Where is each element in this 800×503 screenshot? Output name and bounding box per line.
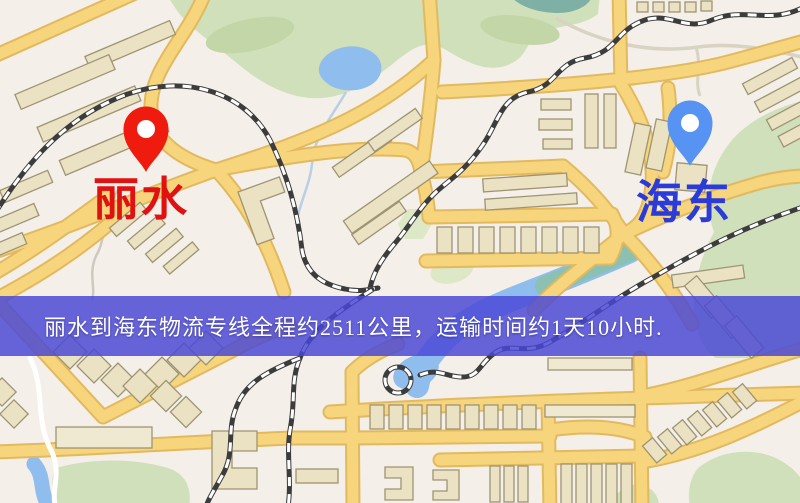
route-info-text: 丽水到海东物流专线全程约2511公里，运输时间约1天10小时. <box>44 310 663 342</box>
destination-city-label: 海东 <box>636 180 732 226</box>
origin-city-label: 丽水 <box>93 177 189 223</box>
map-canvas[interactable] <box>0 0 800 503</box>
route-info-banner: 丽水到海东物流专线全程约2511公里，运输时间约1天10小时. <box>0 296 800 356</box>
origin-pin-icon[interactable] <box>124 107 169 172</box>
map-view: 丽水 海东 丽水到海东物流专线全程约2511公里，运输时间约1天10小时. <box>0 0 800 503</box>
